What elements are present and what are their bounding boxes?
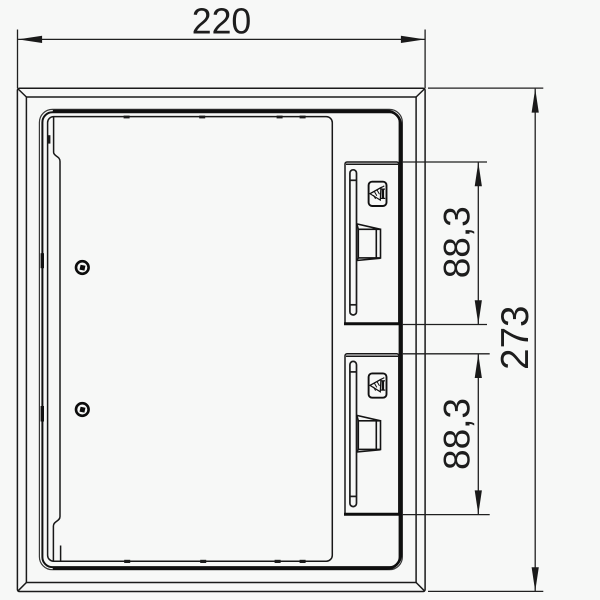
svg-text:88,3: 88,3 [437,206,478,278]
svg-text:220: 220 [192,2,252,42]
svg-text:88,3: 88,3 [437,398,478,470]
svg-text:273: 273 [494,306,537,370]
